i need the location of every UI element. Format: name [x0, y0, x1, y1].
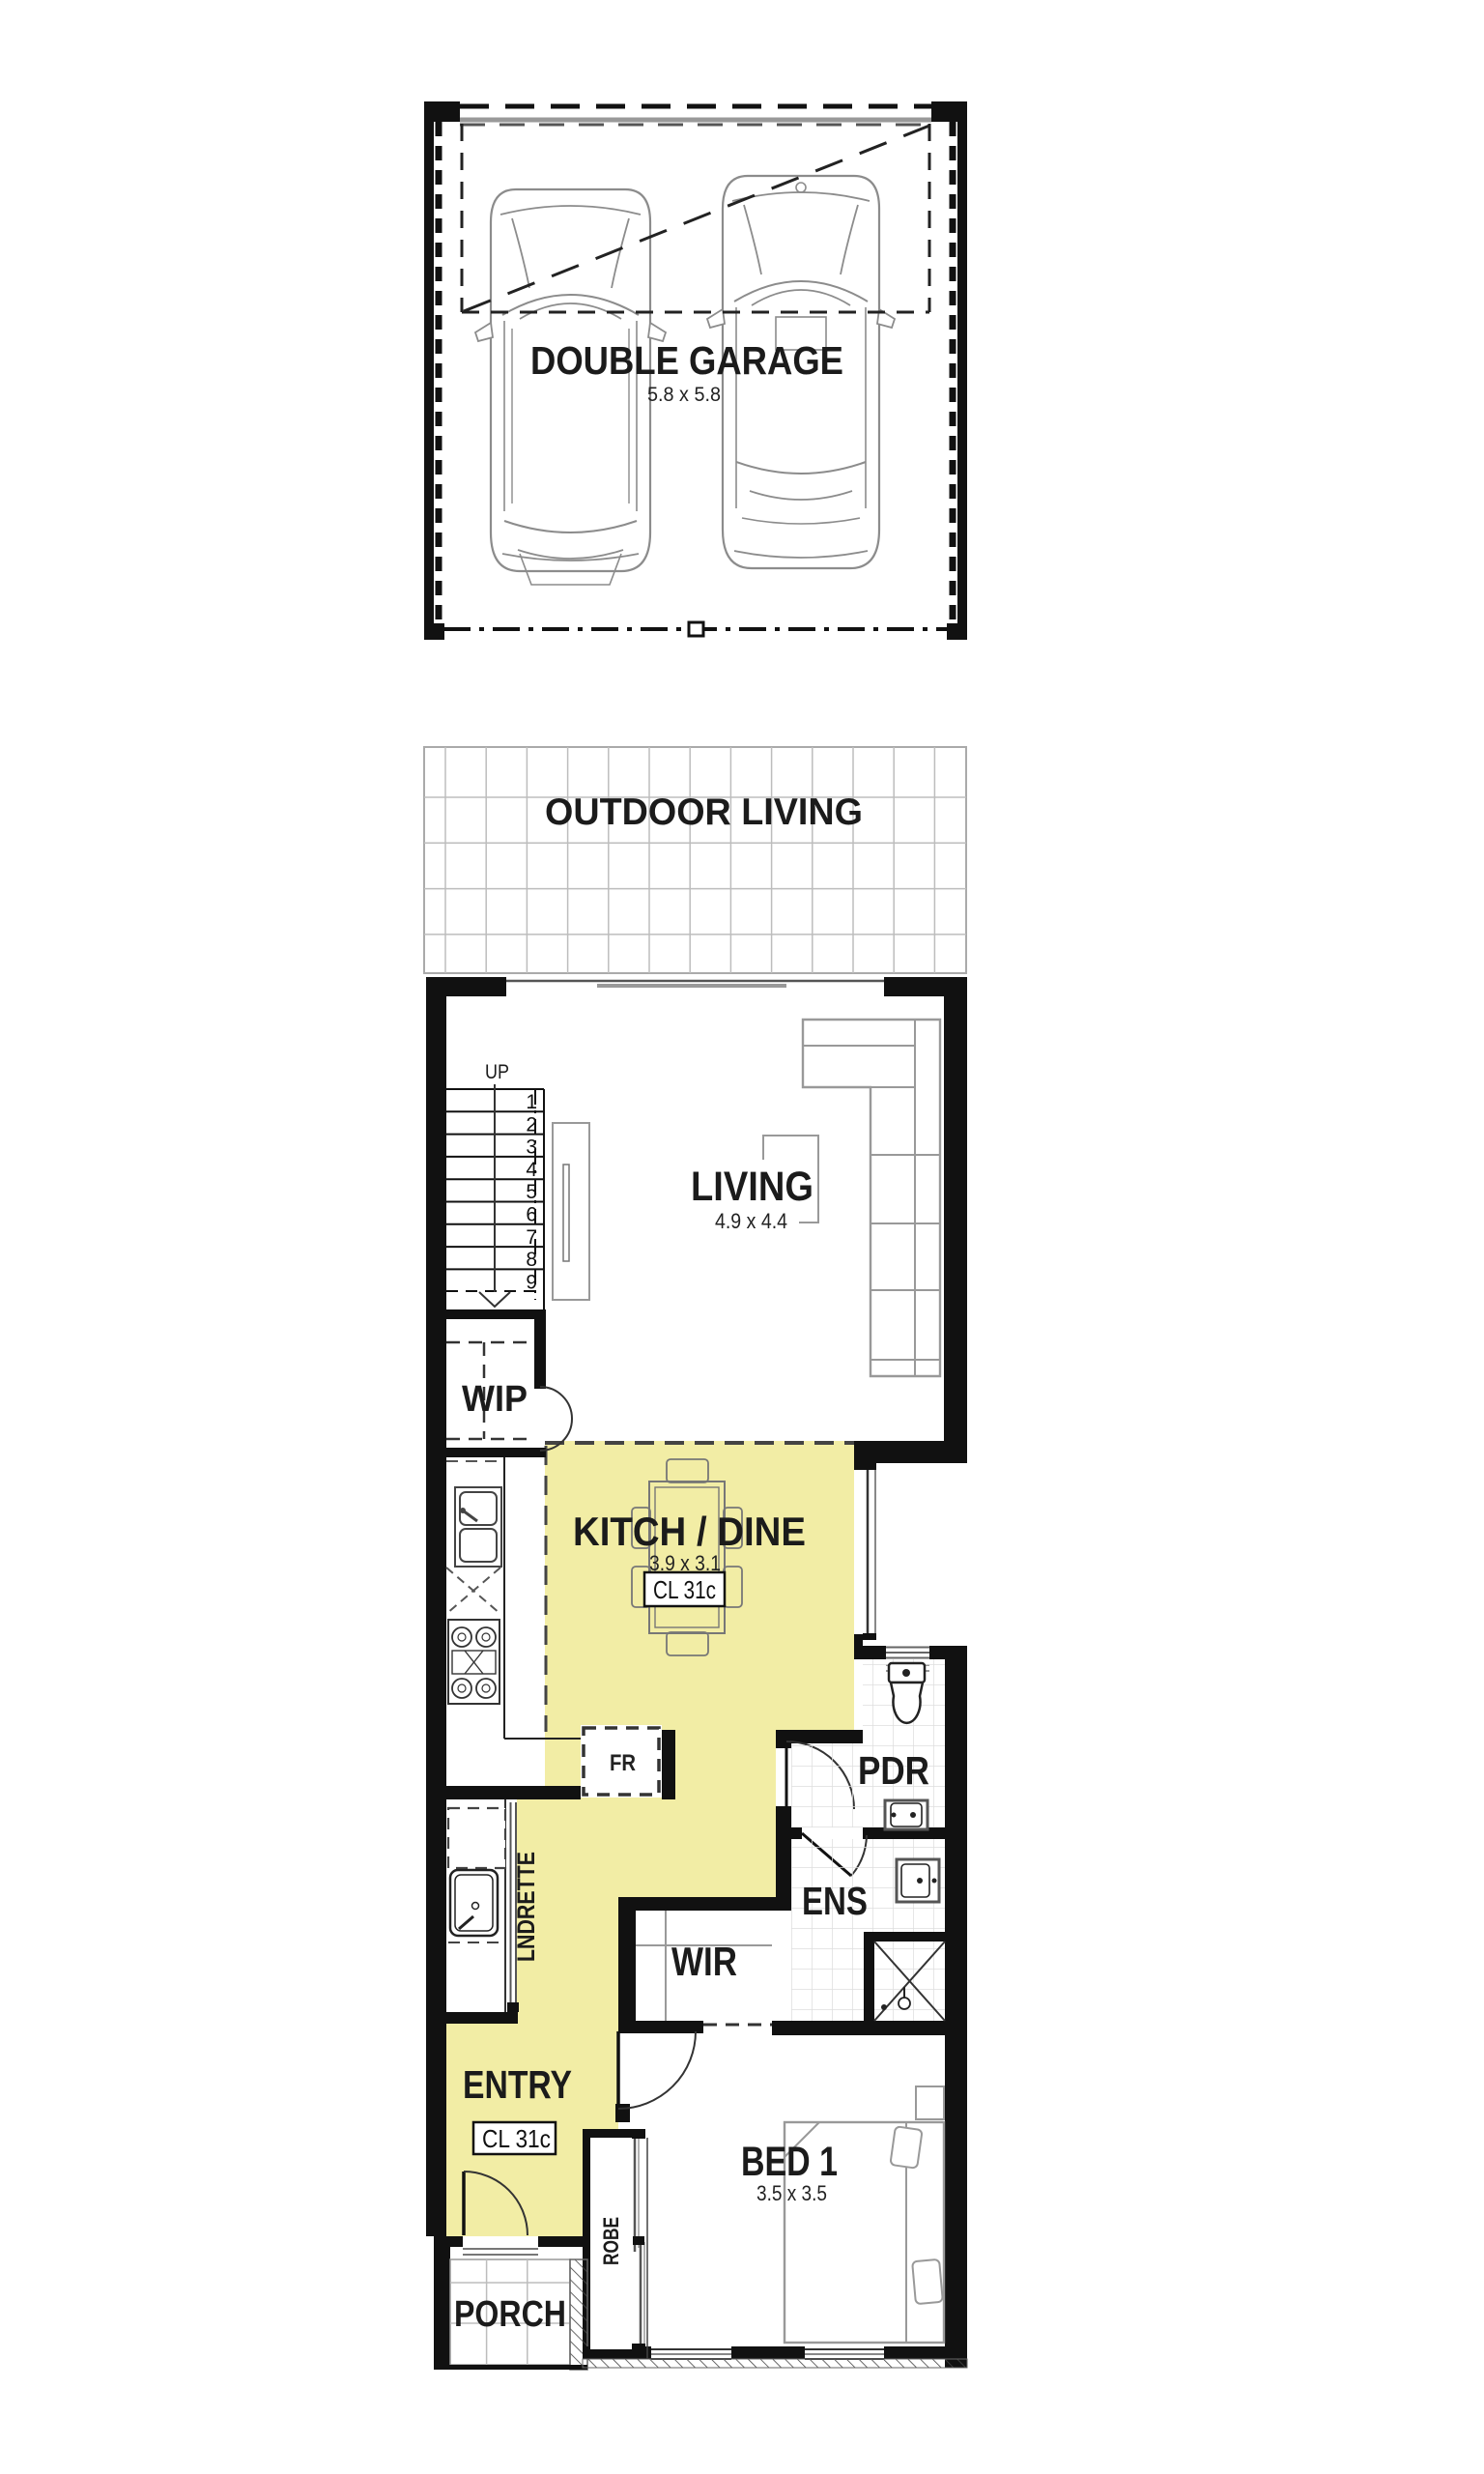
svg-text:4.9 x 4.4: 4.9 x 4.4 — [715, 1209, 787, 1233]
svg-text:8: 8 — [526, 1249, 537, 1271]
svg-text:5.8 x 5.8: 5.8 x 5.8 — [647, 384, 721, 406]
svg-text:PDR: PDR — [858, 1748, 929, 1793]
svg-text:WIP: WIP — [462, 1379, 528, 1420]
svg-text:PORCH: PORCH — [454, 2294, 566, 2335]
svg-text:3: 3 — [526, 1136, 537, 1159]
svg-text:KITCH / DINE: KITCH / DINE — [573, 1509, 806, 1554]
svg-text:ROBE: ROBE — [599, 2217, 623, 2265]
svg-text:UP: UP — [485, 1061, 509, 1083]
svg-text:1: 1 — [526, 1091, 537, 1113]
svg-text:LNDRETTE: LNDRETTE — [513, 1852, 540, 1962]
svg-text:LIVING: LIVING — [691, 1164, 813, 1210]
svg-text:5: 5 — [526, 1181, 537, 1203]
svg-text:CL 31c: CL 31c — [653, 1575, 716, 1604]
svg-text:ENS: ENS — [802, 1879, 868, 1923]
svg-text:7: 7 — [526, 1226, 537, 1249]
svg-text:FR: FR — [610, 1750, 636, 1776]
svg-text:WIR: WIR — [671, 1939, 737, 1984]
svg-text:CL 31c: CL 31c — [482, 2124, 551, 2153]
svg-text:6: 6 — [526, 1204, 537, 1226]
svg-text:9: 9 — [526, 1271, 537, 1293]
svg-text:2: 2 — [526, 1113, 537, 1136]
svg-text:4: 4 — [526, 1159, 537, 1181]
svg-text:3.5 x 3.5: 3.5 x 3.5 — [756, 2181, 827, 2205]
svg-text:OUTDOOR LIVING: OUTDOOR LIVING — [545, 791, 863, 833]
svg-text:ENTRY: ENTRY — [463, 2062, 572, 2107]
svg-text:DOUBLE GARAGE: DOUBLE GARAGE — [530, 338, 843, 383]
svg-text:BED 1: BED 1 — [741, 2139, 838, 2185]
